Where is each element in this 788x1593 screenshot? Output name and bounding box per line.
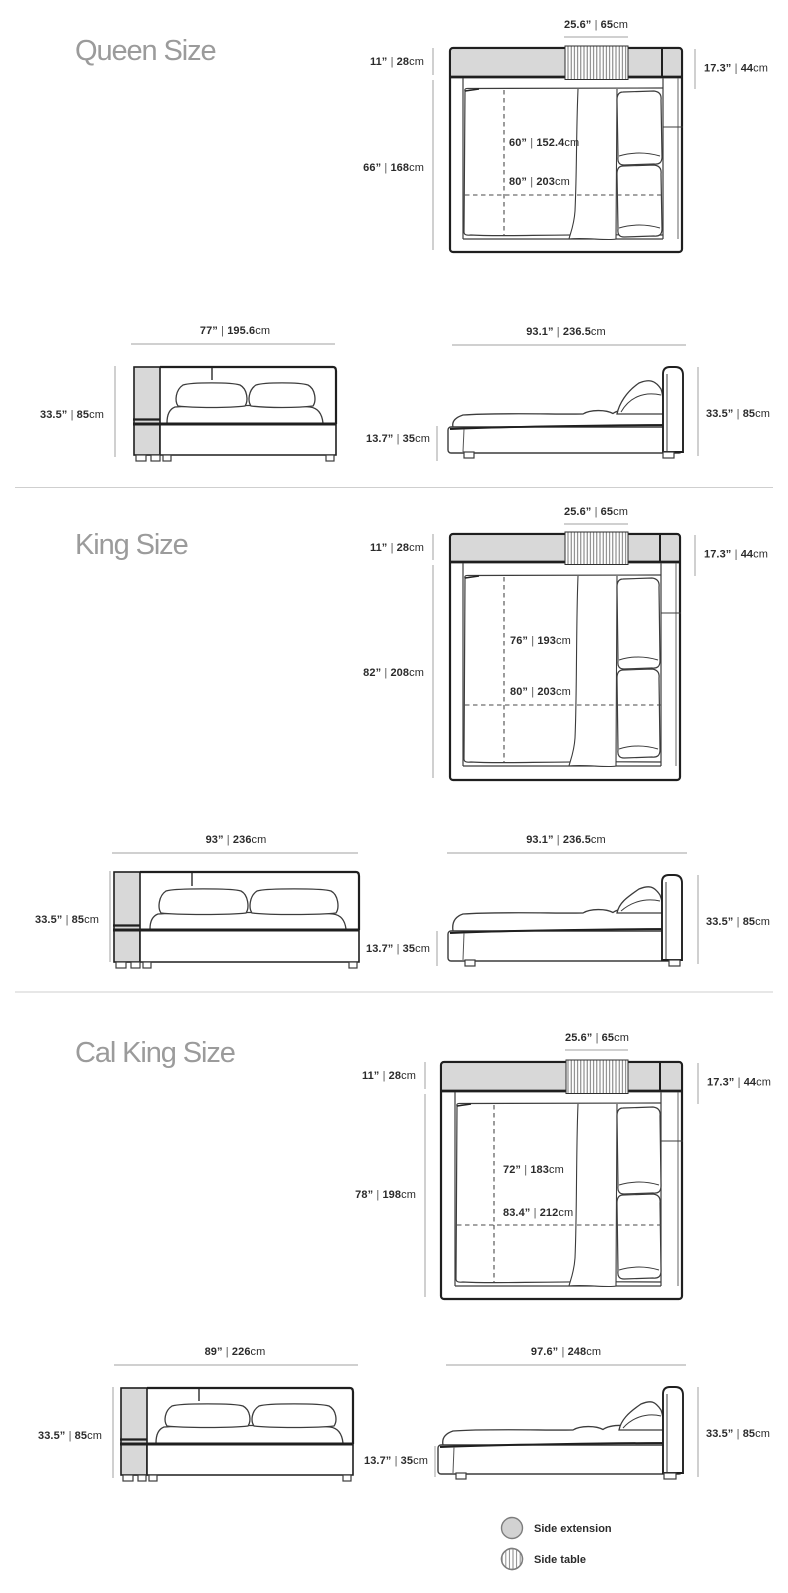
svg-text:66” | 168cm: 66” | 168cm — [363, 162, 424, 174]
svg-text:83.4” | 212cm: 83.4” | 212cm — [503, 1207, 573, 1219]
svg-text:25.6” | 65cm: 25.6” | 65cm — [564, 506, 628, 518]
svg-text:80” | 203cm: 80” | 203cm — [510, 686, 571, 698]
svg-text:33.5” | 85cm: 33.5” | 85cm — [40, 409, 104, 421]
svg-text:78” | 198cm: 78” | 198cm — [355, 1189, 416, 1201]
svg-text:25.6” | 65cm: 25.6” | 65cm — [564, 19, 628, 31]
svg-text:13.7” | 35cm: 13.7” | 35cm — [366, 433, 430, 445]
svg-text:17.3” | 44cm: 17.3” | 44cm — [707, 1077, 771, 1089]
svg-text:11” | 28cm: 11” | 28cm — [370, 542, 424, 554]
svg-text:33.5” | 85cm: 33.5” | 85cm — [706, 916, 770, 928]
svg-text:82” | 208cm: 82” | 208cm — [363, 667, 424, 679]
svg-text:11” | 28cm: 11” | 28cm — [370, 56, 424, 68]
svg-text:33.5” | 85cm: 33.5” | 85cm — [706, 408, 770, 420]
svg-text:80” | 203cm: 80” | 203cm — [509, 176, 570, 188]
svg-text:93” | 236cm: 93” | 236cm — [206, 834, 267, 846]
svg-text:60” | 152.4cm: 60” | 152.4cm — [509, 137, 579, 149]
svg-text:11” | 28cm: 11” | 28cm — [362, 1070, 416, 1082]
svg-text:13.7” | 35cm: 13.7” | 35cm — [364, 1455, 428, 1467]
svg-text:33.5” | 85cm: 33.5” | 85cm — [35, 914, 99, 926]
svg-text:93.1” | 236.5cm: 93.1” | 236.5cm — [526, 834, 606, 846]
svg-text:Side table: Side table — [534, 1554, 586, 1566]
svg-text:33.5” | 85cm: 33.5” | 85cm — [706, 1428, 770, 1440]
svg-text:Queen Size: Queen Size — [75, 35, 216, 67]
svg-text:25.6” | 65cm: 25.6” | 65cm — [565, 1032, 629, 1044]
svg-text:77” | 195.6cm: 77” | 195.6cm — [200, 325, 270, 337]
svg-text:97.6” | 248cm: 97.6” | 248cm — [531, 1346, 601, 1358]
svg-text:Side extension: Side extension — [534, 1523, 612, 1535]
svg-text:Cal King Size: Cal King Size — [75, 1037, 235, 1069]
svg-text:13.7” | 35cm: 13.7” | 35cm — [366, 943, 430, 955]
svg-text:76” | 193cm: 76” | 193cm — [510, 635, 571, 647]
svg-text:72” | 183cm: 72” | 183cm — [503, 1164, 564, 1176]
svg-text:17.3” | 44cm: 17.3” | 44cm — [704, 63, 768, 75]
svg-text:89” | 226cm: 89” | 226cm — [205, 1346, 266, 1358]
svg-text:17.3” | 44cm: 17.3” | 44cm — [704, 549, 768, 561]
svg-text:93.1” | 236.5cm: 93.1” | 236.5cm — [526, 326, 606, 338]
svg-text:33.5” | 85cm: 33.5” | 85cm — [38, 1430, 102, 1442]
svg-text:King Size: King Size — [75, 529, 188, 561]
